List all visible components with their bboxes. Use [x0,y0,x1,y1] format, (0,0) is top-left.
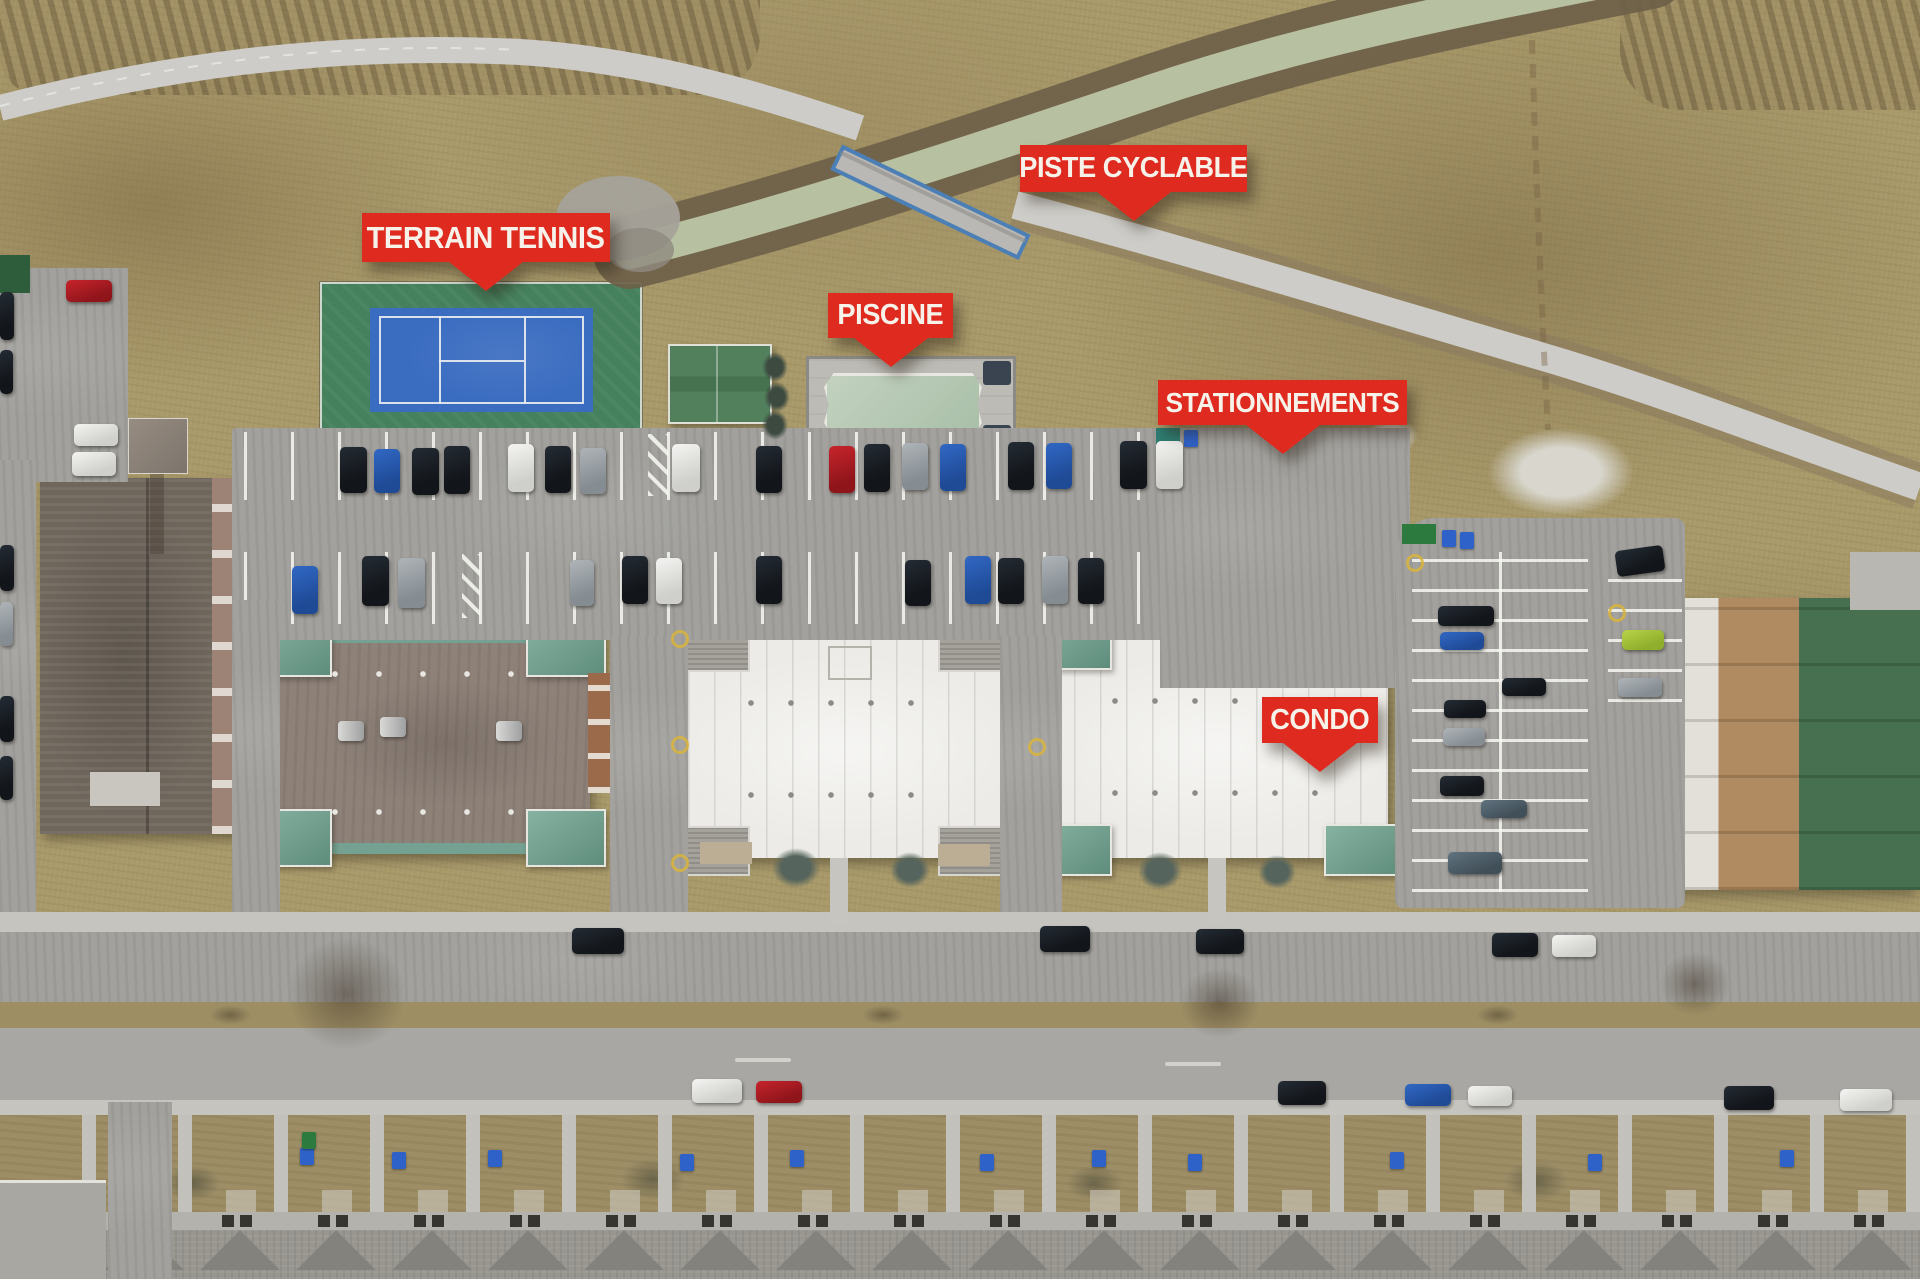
car [1552,935,1596,957]
shrub [1138,852,1182,890]
car [1492,933,1538,957]
car [1481,800,1527,818]
car [998,558,1024,604]
annotation-text: PISCINE [838,299,944,332]
recycle-bin [392,1152,406,1169]
car [1622,630,1664,650]
car [545,446,571,493]
annotation-text: STATIONNEMENTS [1166,387,1400,419]
car [1438,606,1494,626]
car [672,444,700,492]
car [0,292,14,340]
recycle-bin [1442,530,1456,547]
car [292,566,318,614]
car [656,558,682,604]
bare-tree [1660,952,1730,1016]
car [829,446,855,493]
car [72,452,116,476]
pavement-marker [671,854,689,872]
car [1440,632,1484,650]
annotation-piste-cyclable: PISTE CYCLABLE [1020,145,1247,192]
green-shed-roof [0,255,30,293]
annotation-pointer [1097,192,1171,221]
west-road [0,460,36,916]
car [965,556,991,604]
car [756,556,782,604]
car [756,446,782,493]
dumpster [1402,524,1436,544]
pavement-marker [671,630,689,648]
recycle-bin [1092,1150,1106,1167]
garden-hut [128,418,188,474]
annotation-terrain-tennis: TERRAIN TENNIS [362,213,610,262]
pavement-marker [1406,554,1424,572]
shrub [762,352,788,382]
car [570,560,594,606]
car [1444,700,1486,718]
recycle-bin [1780,1150,1794,1167]
car [572,928,624,954]
annotation-condo: CONDO [1262,697,1378,743]
recycle-bin [488,1150,502,1167]
annotation-pointer [449,262,523,291]
gray-roof [1850,552,1920,610]
townhouses-south [0,1102,1920,1279]
car [1120,441,1147,489]
shrub [762,410,788,440]
skylights [0,1215,1920,1227]
car [1440,776,1484,796]
recycle-bin [980,1154,994,1171]
sidewalk-north [0,912,1920,932]
recycle-bin [1390,1152,1404,1169]
sidewalk [0,1102,1920,1115]
car [1468,1086,1512,1106]
shrub [764,382,790,412]
car [1042,556,1068,604]
car [0,545,14,591]
hut-shadow [150,470,164,554]
car [1078,558,1104,604]
car [902,443,928,490]
car [398,558,425,608]
recycle-bin [680,1154,694,1171]
car [1448,852,1502,874]
driveway [232,600,280,926]
annotation-text: CONDO [1270,704,1369,737]
corner-building-roof [0,1180,106,1279]
recycle-bin [790,1150,804,1167]
pavement-marker [1608,604,1626,622]
car [1046,443,1072,489]
car [1443,728,1485,746]
car [66,280,112,302]
annotation-pointer [1283,743,1357,772]
driveway [610,636,688,926]
patio [938,844,990,866]
no-parking-hatch [462,554,480,618]
car [0,756,13,800]
car [692,1079,742,1103]
car [374,449,400,493]
car [1196,929,1244,954]
car [1405,1084,1451,1106]
car [1840,1089,1892,1111]
annotation-stationnements: STATIONNEMENTS [1158,380,1407,425]
annotation-pointer [1246,425,1320,454]
recycle-bin [1188,1154,1202,1171]
parking-stall-lines-east [1412,552,1588,892]
grass-median [0,1002,1920,1028]
shrub [890,852,930,888]
car [905,560,931,606]
patio [700,842,752,864]
car [1278,1081,1326,1105]
car [362,556,389,606]
shrub [1258,855,1296,889]
car [508,444,534,492]
annotation-piscine: PISCINE [828,293,953,338]
annotation-text: PISTE CYCLABLE [1019,152,1247,185]
front-walkway [1208,858,1226,924]
road-lane-south [0,1028,1920,1100]
lot-east-connector [1160,428,1410,688]
pavement-marker [671,736,689,754]
car [940,444,966,491]
car [444,446,470,494]
car [0,696,14,742]
annotation-pointer [854,338,928,367]
car [0,602,13,646]
pavement-marker [1028,738,1046,756]
car [0,350,13,394]
aerial-photo-scene: TERRAIN TENNIS PISTE CYCLABLE PISCINE ST… [0,0,1920,1279]
car [412,448,439,495]
recycle-bin [1184,430,1198,447]
car [1502,678,1546,696]
car [580,448,606,494]
shrub [772,848,820,888]
boulevard [0,912,1920,1116]
car [1008,442,1034,490]
recycle-bin [300,1148,314,1165]
bare-tree [1180,968,1260,1038]
no-parking-hatch [648,434,668,496]
car [1618,678,1662,697]
car [1724,1086,1774,1110]
car [1156,441,1183,489]
recycle-bin [1460,532,1474,549]
rear-decks [0,1190,1920,1212]
lane-marking [735,1058,791,1062]
car [74,424,118,446]
car [864,444,890,492]
car [340,447,367,493]
car [1040,926,1090,952]
annotation-text: TERRAIN TENNIS [367,220,605,256]
alley [108,1102,172,1279]
car [756,1081,802,1103]
roof-dormers [0,1230,1920,1270]
recycle-bin [1588,1154,1602,1171]
bare-tree [288,938,406,1050]
driveway [1000,636,1062,926]
front-walkway [830,858,848,924]
lane-marking [1165,1062,1221,1066]
green-bin [302,1132,316,1149]
car [622,556,648,604]
